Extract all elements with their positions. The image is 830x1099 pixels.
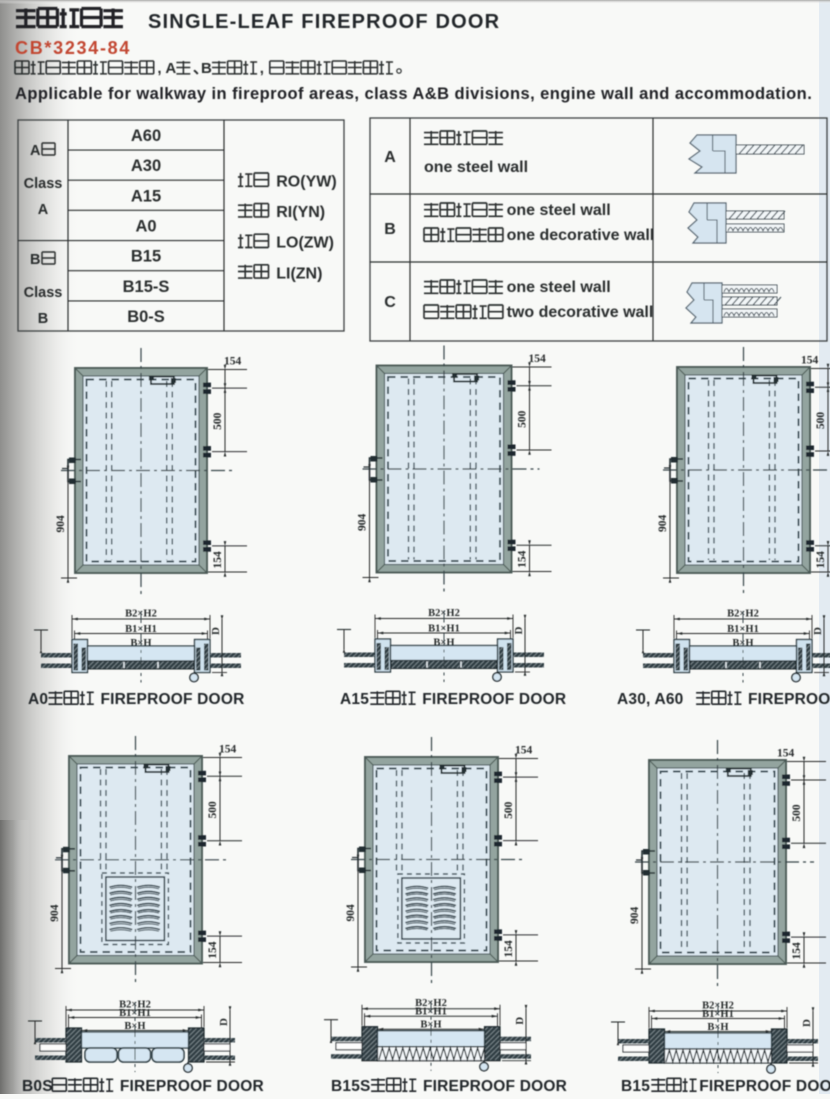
svg-text:154: 154 [503, 940, 515, 958]
svg-text:B15S: B15S [331, 1078, 371, 1094]
svg-text:154: 154 [791, 942, 803, 960]
svg-text:A30, A60: A30, A60 [617, 691, 684, 708]
svg-text:CB*3234-84: CB*3234-84 [15, 38, 131, 58]
svg-text:A30: A30 [131, 157, 161, 175]
svg-text:one steel wall: one steel wall [424, 159, 528, 176]
svg-text:154: 154 [224, 356, 242, 368]
svg-text:154: 154 [529, 353, 547, 365]
svg-text:LO(ZW): LO(ZW) [276, 235, 334, 252]
svg-text:D: D [218, 1018, 230, 1026]
svg-text:FIREPROOF DOOR: FIREPROOF DOOR [423, 1078, 567, 1094]
svg-text:Applicable for walkway in fire: Applicable for walkway in fireproof area… [15, 85, 812, 103]
svg-text:one steel wall: one steel wall [507, 202, 611, 219]
svg-text:500: 500 [815, 412, 827, 430]
svg-text:one steel wall: one steel wall [507, 279, 611, 296]
svg-text:A15: A15 [340, 691, 369, 708]
svg-text:D: D [812, 627, 824, 635]
svg-text:B0S: B0S [22, 1078, 53, 1094]
svg-text:SINGLE-LEAF FIREPROOF DOOR: SINGLE-LEAF FIREPROOF DOOR [148, 11, 500, 33]
svg-text:FIREPROOF DOOR: FIREPROOF DOOR [422, 691, 566, 708]
svg-text:FIREPROOF D: FIREPROOF D [748, 691, 830, 708]
svg-text:FIREPROOF DOOR: FIREPROOF DOOR [120, 1078, 264, 1094]
svg-text:904: 904 [49, 904, 61, 922]
svg-text:Class: Class [24, 285, 63, 301]
svg-text:RI(YN): RI(YN) [276, 204, 325, 221]
svg-text:B15: B15 [621, 1078, 650, 1094]
svg-text:154: 154 [219, 744, 237, 756]
svg-text:D: D [210, 627, 222, 635]
svg-text:B0-S: B0-S [127, 308, 165, 326]
svg-text:B: B [38, 311, 48, 327]
svg-text:154: 154 [207, 941, 219, 959]
svg-text:B: B [384, 221, 396, 238]
svg-text:904: 904 [357, 514, 369, 532]
svg-text:154: 154 [212, 551, 224, 569]
svg-text:500: 500 [503, 801, 515, 819]
svg-text:154: 154 [517, 550, 529, 568]
svg-text:154: 154 [777, 748, 795, 760]
svg-text:RO(YW): RO(YW) [276, 174, 336, 191]
svg-text:two decorative wall: two decorative wall [507, 304, 654, 321]
svg-text:154: 154 [801, 355, 819, 367]
svg-text:A: A [384, 149, 396, 166]
svg-text:FIREPROOF DOO: FIREPROOF DOO [699, 1078, 830, 1094]
svg-text:A15: A15 [131, 187, 161, 205]
svg-text:904: 904 [629, 907, 641, 925]
svg-text:LI(ZN): LI(ZN) [276, 265, 322, 282]
svg-text:B: B [201, 60, 212, 77]
svg-text:A0: A0 [28, 691, 48, 708]
svg-text:154: 154 [515, 745, 533, 757]
svg-text:A60: A60 [131, 127, 161, 145]
svg-text:B15-S: B15-S [123, 278, 170, 296]
svg-text:C: C [384, 294, 396, 311]
svg-text:Class: Class [24, 176, 63, 192]
svg-text:,: , [260, 60, 264, 77]
svg-text:one decorative wall: one decorative wall [507, 227, 655, 244]
svg-text:500: 500 [517, 410, 529, 428]
svg-text:D: D [514, 1017, 526, 1025]
svg-text:A: A [38, 202, 49, 218]
svg-text:500: 500 [207, 801, 219, 819]
svg-text:A: A [30, 143, 41, 159]
svg-text:500: 500 [212, 412, 224, 430]
svg-text:500: 500 [791, 804, 803, 822]
svg-text:A: A [165, 60, 176, 77]
svg-text:154: 154 [815, 551, 827, 569]
svg-text:B: B [30, 252, 40, 268]
svg-text:,: , [157, 60, 161, 77]
svg-text:A0: A0 [135, 217, 156, 235]
svg-text:904: 904 [345, 904, 357, 922]
svg-text:D: D [801, 1019, 813, 1027]
svg-text:D: D [513, 627, 525, 635]
svg-text:B15: B15 [131, 248, 161, 266]
svg-text:904: 904 [55, 515, 67, 533]
svg-text:904: 904 [657, 515, 669, 533]
svg-text:FIREPROOF DOOR: FIREPROOF DOOR [100, 691, 244, 708]
